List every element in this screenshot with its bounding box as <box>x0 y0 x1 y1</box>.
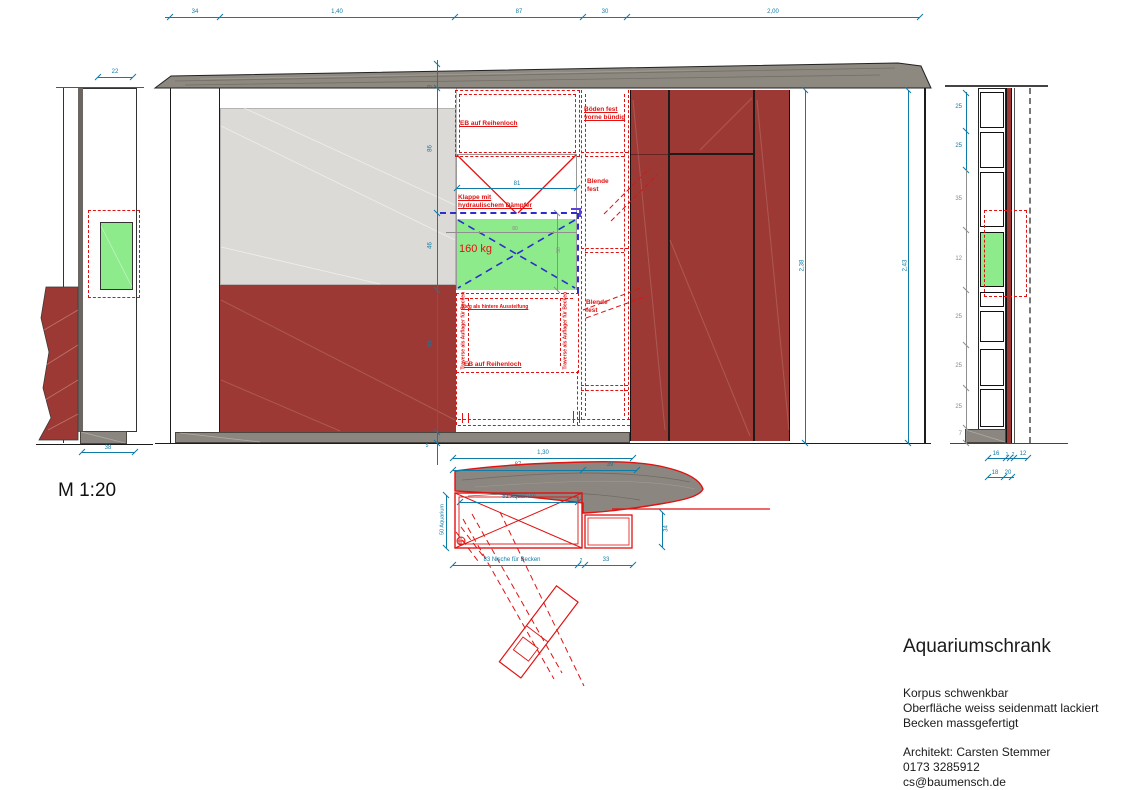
annotation-boeden: Böden fest <box>584 106 618 114</box>
spec-line: Korpus schwenkbar <box>903 686 1133 701</box>
dim-line <box>82 452 135 453</box>
dim-line <box>453 458 633 459</box>
annotation-traverse: Traverse als Auflager für Becken <box>461 305 467 370</box>
spec-line: Oberfläche weiss seidenmatt lackiert <box>903 701 1133 716</box>
dim-label: 2,43 <box>903 244 910 288</box>
dim-label: 8 <box>428 79 435 95</box>
dim-label: 12 <box>1015 451 1031 458</box>
red-tick <box>468 413 469 423</box>
plan-side-box <box>585 515 632 548</box>
dim-label: 30 <box>585 9 625 16</box>
dim-label: 5 <box>420 443 434 449</box>
annotation-traverse: Traverse als Auflager für Becken <box>563 305 569 370</box>
dashed-rail <box>585 252 624 253</box>
red-tick <box>462 413 463 423</box>
drawing-canvas: 34 1,40 87 30 2,00 22 38 8 86 46 96 5 2,… <box>0 0 1142 790</box>
dim-label: 81 <box>497 181 537 188</box>
dim-label: 20 <box>1000 470 1016 477</box>
spec-line: Becken massgefertigt <box>903 716 1133 731</box>
dim-line <box>457 188 577 189</box>
dim-label: 12 <box>940 256 962 263</box>
dim-label: 25 <box>940 363 962 370</box>
dim-label: 2 <box>574 558 588 564</box>
dashed-rail <box>581 152 628 153</box>
dashed-rail <box>585 156 624 157</box>
dashed-rail <box>581 248 628 249</box>
dim-label: 7 <box>940 431 962 438</box>
dim-label: 33 <box>596 557 616 564</box>
dashed-traverse-strip <box>560 298 561 366</box>
dim-label: 87 <box>499 9 539 16</box>
red-tick <box>573 411 574 423</box>
dim-line <box>988 477 1014 478</box>
annotation-eb-bottom: EB auf Reihenloch <box>464 361 521 369</box>
dashed-steg-zone-top <box>460 298 573 299</box>
dim-line <box>165 17 920 18</box>
dim-label: 46 <box>428 238 435 254</box>
dim-label: 82 Aquarium <box>479 494 559 501</box>
weight-label: 160 kg <box>459 246 492 254</box>
front-roof <box>155 63 931 88</box>
dim-label: 34 <box>664 521 671 537</box>
dim-label: 35 <box>940 196 962 203</box>
dim-line-gray <box>966 170 967 443</box>
dim-label: 50 <box>556 242 562 258</box>
dashed-blende-strip-inner <box>624 94 625 416</box>
annotation-blende: Blende <box>587 178 609 186</box>
annotation-blende: fest <box>586 307 598 315</box>
dashed-rail <box>581 385 628 386</box>
dim-label: 16 <box>988 451 1004 458</box>
dashed-rail <box>581 390 628 391</box>
dashed-lower-vertical <box>577 371 578 425</box>
annotation-klappe: hydraulischem Dämpfer <box>458 202 532 210</box>
dim-label: 96 <box>428 336 435 352</box>
dashed-lower-vertical <box>456 371 457 425</box>
scale-label: M 1:20 <box>58 480 116 502</box>
dashed-blende-strip-inner <box>585 94 586 416</box>
flap-open-hidden-line <box>577 213 579 293</box>
drawing-title: Aquariumschrank <box>903 636 1133 658</box>
dim-line <box>453 470 637 471</box>
annotation-blende: fest <box>587 186 599 194</box>
dashed-blende-strip <box>628 90 629 420</box>
dim-label: 86 <box>428 141 435 157</box>
dim-label: 39 <box>590 462 630 469</box>
dim-label: 87 <box>498 462 538 469</box>
dashed-bottom-rail <box>458 425 630 426</box>
title-block: Aquariumschrank Korpus schwenkbar Oberfl… <box>903 636 1133 790</box>
dim-label: 25 <box>940 143 962 150</box>
dim-label: 83 Nische für Becken <box>462 557 562 564</box>
dim-label: 2,38 <box>800 244 807 288</box>
dim-label: 50 Aquarium <box>440 490 447 550</box>
dim-line <box>437 60 438 465</box>
dim-label: 1,40 <box>307 9 367 16</box>
architect-phone: 0173 3285912 <box>903 760 1133 775</box>
red-tick <box>579 411 580 423</box>
annotation-klappe: Klappe mit <box>458 194 491 202</box>
annotation-steg: Steg als hintere Aussteifung <box>461 304 528 310</box>
flap-hidden-corner <box>571 208 581 217</box>
architect-line: Architekt: Carsten Stemmer <box>903 745 1133 760</box>
flap-open-hidden-line <box>440 212 577 214</box>
annotation-boeden: vorne bündig <box>584 114 625 122</box>
dim-label: 25 <box>940 404 962 411</box>
dim-label: 25 <box>940 104 962 111</box>
architect-email: cs@baumensch.de <box>903 775 1133 790</box>
annotation-eb-top: EB auf Reihenloch <box>460 120 517 128</box>
annotation-blende: Blende <box>586 299 608 307</box>
dim-label: 2,00 <box>743 9 803 16</box>
right-view-dashed-zone <box>984 210 1027 297</box>
dim-line <box>98 77 133 78</box>
dim-label: 34 <box>175 9 215 16</box>
dashed-bottom-rail <box>458 419 630 420</box>
dim-label: 22 <box>95 69 135 76</box>
dim-line <box>988 458 1028 459</box>
left-view-dashed-zone <box>88 210 140 298</box>
dim-label: 38 <box>88 445 128 452</box>
dim-line <box>453 565 633 566</box>
dashed-blende-strip <box>581 90 582 420</box>
dim-line <box>966 92 967 170</box>
dim-label: 1,30 <box>513 450 573 457</box>
dim-line <box>460 502 578 503</box>
dim-label: 25 <box>940 314 962 321</box>
dim-label: 80 <box>495 226 535 232</box>
